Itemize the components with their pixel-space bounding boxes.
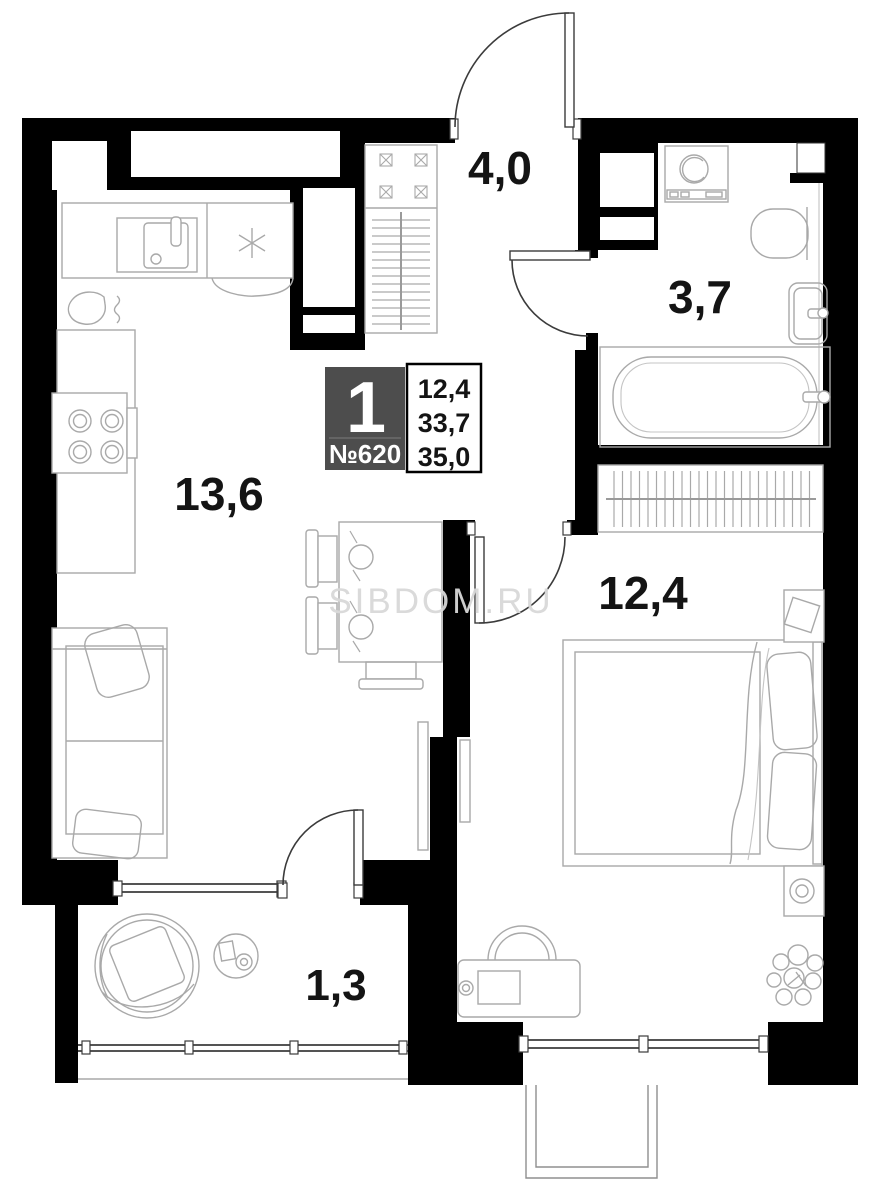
niche-duct-small	[303, 315, 355, 333]
decor-leaf	[68, 292, 105, 324]
watermark: SIBDOM.RU	[328, 582, 553, 621]
floor-plan-page: SIBDOM.RU 13,6 4,0 3,7 12,4 1,3 1 №620 1…	[0, 0, 892, 1200]
wall-top-middle	[353, 118, 455, 143]
table-pedestal	[366, 662, 416, 679]
wall-bath-bottom	[575, 445, 858, 465]
table-pedestal-base	[359, 679, 423, 689]
exterior-ledge	[526, 1085, 657, 1178]
wall-right	[823, 118, 858, 1085]
fridge-door-curve	[212, 278, 293, 296]
area-label-bedroom: 12,4	[598, 567, 688, 619]
area-value-total: 35,0	[418, 442, 471, 472]
side-table-cup	[236, 954, 252, 970]
stove	[52, 393, 127, 473]
chair-2-back	[306, 597, 318, 654]
balcony-door	[278, 810, 363, 898]
living-window	[113, 881, 286, 897]
side-table-cup-inner	[241, 959, 248, 966]
wall-mirror	[460, 740, 470, 822]
wall-bed-bottom-left	[455, 1022, 523, 1085]
bedroom	[458, 465, 824, 1017]
niche-entry-small	[600, 217, 654, 240]
stool-arc-outer	[488, 926, 556, 960]
area-label-kitchen-living: 13,6	[174, 468, 264, 520]
decor-squiggle	[115, 296, 120, 323]
wall-center-upper	[443, 520, 470, 737]
wall-balcony-right	[408, 905, 455, 1085]
wall-bed-bottom-right	[768, 1022, 858, 1085]
bathtub-rim	[613, 357, 817, 438]
balcony-glazing	[78, 1041, 408, 1079]
hallway-closet	[365, 145, 437, 333]
kitchen-faucet	[171, 217, 181, 246]
area-label-bathroom: 3,7	[668, 271, 732, 323]
apartment-number: №620	[329, 439, 401, 469]
apartment-badge: 1 №620 12,4 33,7 35,0	[325, 364, 481, 472]
sink-faucet-knob	[818, 308, 828, 318]
niche-entry-tall	[600, 153, 654, 207]
bathtub-inner	[621, 363, 809, 432]
floor-plan: SIBDOM.RU 13,6 4,0 3,7 12,4 1,3 1 №620 1…	[0, 0, 892, 1200]
wall-top-bathroom	[578, 118, 858, 143]
wall-bed-door-right	[567, 520, 598, 535]
wall-bath-niche-frame	[790, 173, 825, 183]
wall-balcony-left	[55, 905, 78, 1083]
rooms-count: 1	[346, 368, 386, 448]
wall-living-bottom-right	[360, 860, 455, 905]
round-chair-cushion	[108, 925, 186, 1003]
area-label-hallway: 4,0	[468, 142, 532, 194]
sofa	[52, 628, 167, 858]
toilet-bowl	[751, 209, 808, 258]
bathtub-faucet-knob	[818, 391, 830, 403]
chair-1-seat	[318, 536, 337, 582]
niche-vent-shaft	[52, 141, 107, 190]
niche-duct-tall	[303, 188, 355, 307]
dresser	[458, 960, 580, 1017]
tv-unit	[418, 722, 428, 850]
entrance-door	[450, 13, 581, 139]
stool-arc-inner	[495, 933, 549, 960]
area-value-living: 12,4	[418, 374, 471, 404]
bedroom-window	[519, 1036, 768, 1052]
wall-bath-west-lower	[575, 350, 598, 535]
chair-1-back	[306, 530, 318, 587]
washing-machine	[665, 146, 728, 202]
bathroom-door	[510, 251, 590, 336]
nightstand-top	[784, 590, 824, 642]
niche-bath-corner	[797, 143, 825, 173]
area-label-balcony: 1,3	[305, 961, 366, 1010]
plant-icon	[767, 945, 823, 1005]
side-table-item	[219, 941, 236, 961]
area-value-no-balcony: 33,7	[418, 408, 471, 438]
stove-handle	[127, 408, 137, 458]
wall-living-bottom-left	[22, 860, 118, 905]
balcony	[95, 914, 258, 1018]
niche-top-cabinet	[131, 131, 340, 177]
